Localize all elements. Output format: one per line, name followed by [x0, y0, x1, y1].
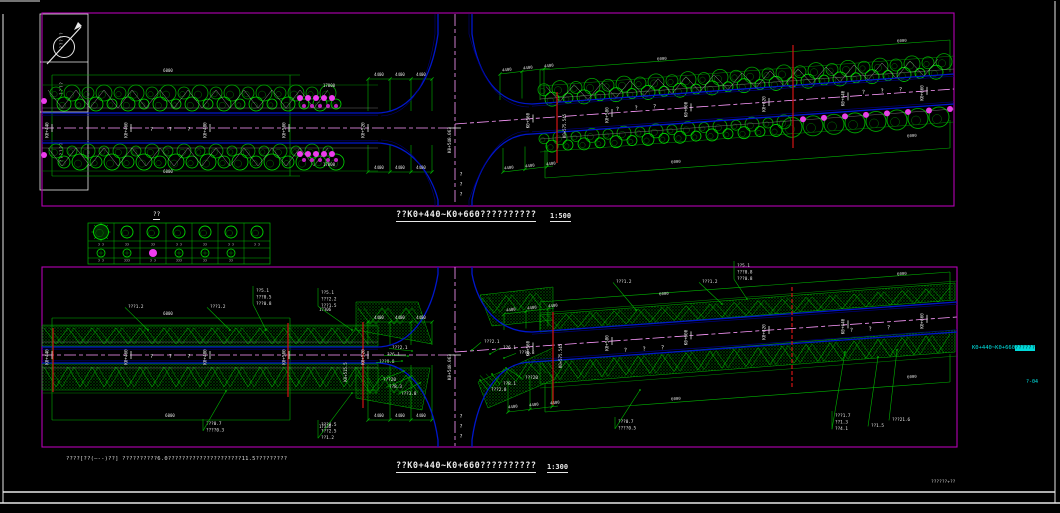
north-arrow — [47, 22, 82, 64]
svg-text:K0+640: K0+640 — [841, 90, 847, 106]
svg-text:6000: 6000 — [907, 133, 918, 139]
svg-text:17000: 17000 — [323, 83, 336, 88]
svg-text:???0.5: ???0.5 — [256, 294, 272, 300]
svg-text:4400: 4400 — [523, 64, 534, 70]
general-note: ????[??(—--)??] ??????????6.0???????????… — [66, 456, 287, 462]
svg-text:6000: 6000 — [657, 56, 668, 62]
svg-text:??4.1: ??4.1 — [835, 426, 848, 432]
svg-text:????0.5: ????0.5 — [618, 425, 637, 431]
svg-text:6000: 6000 — [163, 169, 173, 174]
svg-text:K0+640: K0+640 — [841, 318, 847, 334]
svg-text:? ? ?: ? ? ? — [616, 104, 663, 113]
svg-text:4400: 4400 — [395, 315, 405, 320]
svg-text:???0.8: ???0.8 — [256, 301, 272, 307]
svg-text:???1.2: ???1.2 — [702, 279, 718, 285]
svg-text:???1.7: ???1.7 — [835, 413, 851, 419]
svg-text:4400: 4400 — [546, 160, 557, 166]
svg-text:4400: 4400 — [374, 72, 384, 77]
svg-text:?: ? — [459, 424, 462, 430]
svg-text:6000: 6000 — [163, 311, 173, 316]
svg-text:K0+540.063: K0+540.063 — [447, 127, 453, 153]
svg-text:4400: 4400 — [504, 164, 515, 170]
svg-text:???0.8: ???0.8 — [519, 350, 535, 356]
svg-text:4400: 4400 — [374, 165, 384, 170]
svg-text:???: ??? — [124, 259, 130, 263]
svg-text:?: ? — [459, 434, 462, 440]
drawing-root: ???????????????K0+575.545K0+515.5K0+575.… — [0, 1, 1060, 503]
svg-text:? ?: ? ? — [254, 243, 260, 247]
svg-text:??1.2: ??1.2 — [321, 435, 334, 441]
svg-text:6000: 6000 — [659, 291, 670, 297]
svg-text:? ?: ? ? — [228, 243, 234, 247]
svg-text:???1.2: ???1.2 — [210, 304, 226, 310]
svg-text:K0+500: K0+500 — [282, 122, 288, 138]
svg-text:4400: 4400 — [395, 413, 405, 418]
svg-text:K0+620: K0+620 — [762, 96, 768, 112]
svg-text:? ?: ? ? — [150, 259, 156, 263]
svg-text:4400: 4400 — [395, 165, 405, 170]
svg-text:??5.1: ??5.1 — [737, 263, 750, 269]
svg-text:K0+540.063: K0+540.063 — [447, 354, 453, 380]
svg-text:? ? ?: ? ? ? — [862, 87, 909, 96]
svg-text:???2.2: ???2.2 — [321, 296, 337, 302]
svg-text:???1.5: ???1.5 — [321, 303, 337, 309]
svg-text:? ? ?: ? ? ? — [150, 354, 197, 360]
svg-text:K0+440: K0+440 — [45, 349, 51, 365]
svg-text:???2.8: ???2.8 — [491, 387, 507, 393]
bottom-plan-title: ??K0+440~K0+660?????????? — [396, 461, 536, 473]
svg-text:4400: 4400 — [416, 413, 426, 418]
svg-text:? ? ?: ? ? ? — [150, 127, 197, 133]
svg-text:???20: ???20 — [383, 377, 396, 383]
svg-text:K0+580: K0+580 — [605, 107, 611, 123]
svg-text:??: ?? — [229, 259, 233, 263]
svg-text:?: ? — [459, 192, 462, 198]
svg-text:??: ?? — [203, 259, 207, 263]
titleblock-small-text: ??????+?? — [931, 480, 955, 485]
svg-text:???1.2: ???1.2 — [616, 279, 632, 285]
svg-text:K0+600: K0+600 — [684, 101, 690, 117]
top-plan-scale: 1:500 — [550, 212, 571, 222]
svg-text:K0+660: K0+660 — [920, 85, 926, 101]
svg-text:K0+460: K0+460 — [124, 349, 130, 365]
svg-text:17000: 17000 — [323, 162, 336, 167]
svg-text:6000: 6000 — [671, 396, 682, 402]
cad-drawing-canvas[interactable]: ???????????????K0+575.545K0+515.5K0+575.… — [0, 0, 1060, 513]
svg-text:???20: ???20 — [525, 375, 538, 381]
svg-text:??6.1: ??6.1 — [503, 345, 516, 351]
svg-text:6000: 6000 — [907, 374, 918, 380]
svg-text:6000: 6000 — [897, 38, 908, 44]
svg-text:4400: 4400 — [416, 72, 426, 77]
svg-text:4400: 4400 — [544, 62, 555, 68]
svg-text:??1.3: ??1.3 — [835, 419, 848, 425]
sheet-number: ?-04 — [1026, 379, 1038, 385]
svg-text:4400: 4400 — [527, 304, 538, 310]
svg-text:??5.1: ??5.1 — [321, 290, 334, 296]
sheet-border: ??????????????? — [0, 1, 1060, 503]
svg-text:4400: 4400 — [416, 315, 426, 320]
svg-text:??8.1: ??8.1 — [503, 381, 516, 387]
svg-text:???0.8: ???0.8 — [737, 269, 753, 275]
legend-title: ?? — [153, 211, 160, 220]
svg-text:4400: 4400 — [529, 401, 540, 407]
svg-text:4400: 4400 — [506, 306, 517, 312]
svg-text:K0+600: K0+600 — [684, 329, 690, 345]
svg-text:6000: 6000 — [897, 271, 908, 277]
svg-text:K0+520: K0+520 — [361, 349, 367, 365]
svg-text:K0+575.545: K0+575.545 — [562, 113, 567, 138]
svg-text:K0+575.545: K0+575.545 — [558, 343, 563, 368]
svg-text:K0+620: K0+620 — [762, 324, 768, 340]
svg-text:?: ? — [459, 182, 462, 188]
svg-text:??6.1: ??6.1 — [387, 352, 400, 358]
svg-text:K0+480: K0+480 — [203, 349, 209, 365]
svg-text:K0+460: K0+460 — [124, 122, 130, 138]
svg-text:??: ?? — [125, 243, 129, 247]
side-station-highlight: ?????? — [1015, 345, 1035, 351]
svg-text:???2.1: ???2.1 — [484, 339, 500, 345]
svg-text:? ?: ? ? — [98, 243, 104, 247]
svg-text:K0+515.5: K0+515.5 — [343, 362, 348, 382]
svg-text:6000: 6000 — [671, 159, 682, 165]
svg-text:??: ?? — [203, 243, 207, 247]
svg-text:4400: 4400 — [525, 162, 536, 168]
svg-text:??8.3: ??8.3 — [389, 384, 402, 390]
svg-text:K0+580: K0+580 — [605, 335, 611, 351]
svg-text:???: ??? — [176, 259, 182, 263]
svg-text:??5.1: ??5.1 — [256, 288, 269, 294]
side-station-label: K0+440~K0+660?????? — [972, 345, 1035, 351]
svg-text:????0.3: ????0.3 — [206, 427, 225, 433]
svg-text:???1.2: ???1.2 — [128, 304, 144, 310]
top-plan-title: ??K0+440~K0+660?????????? — [396, 210, 536, 222]
svg-text:4400: 4400 — [502, 66, 513, 72]
svg-text:? ?: ? ? — [98, 259, 104, 263]
svg-text:K0+520: K0+520 — [361, 122, 367, 138]
svg-text:K0+660: K0+660 — [920, 313, 926, 329]
svg-text:4400: 4400 — [548, 302, 559, 308]
svg-text:K0+560: K0+560 — [526, 112, 532, 128]
svg-text:6000: 6000 — [165, 413, 175, 418]
svg-text:??: ?? — [151, 243, 155, 247]
svg-text:6000: 6000 — [163, 68, 173, 73]
svg-text:???0.5: ???0.5 — [321, 422, 337, 428]
svg-text:4400: 4400 — [395, 72, 405, 77]
svg-text:???0.8: ???0.8 — [737, 276, 753, 282]
top-plan-frame — [42, 13, 954, 206]
svg-text:K0+500: K0+500 — [282, 349, 288, 365]
svg-text:4400: 4400 — [374, 413, 384, 418]
side-station-text: K0+440~K0+660 — [972, 345, 1015, 351]
svg-text:?: ? — [459, 414, 462, 420]
svg-text:4400: 4400 — [508, 403, 519, 409]
svg-text:4400: 4400 — [550, 399, 561, 405]
svg-text:4400: 4400 — [416, 165, 426, 170]
svg-text:K0+440: K0+440 — [45, 122, 51, 138]
svg-text:4400: 4400 — [374, 315, 384, 320]
svg-text:?: ? — [459, 172, 462, 178]
svg-text:??1.5: ??1.5 — [871, 423, 884, 429]
cad-sheet: ???????????????K0+575.545K0+515.5K0+575.… — [0, 0, 1060, 513]
svg-text:K0+480: K0+480 — [203, 122, 209, 138]
legend-table: ? ?? ????????? ?? ????????? ???? ? — [88, 223, 270, 265]
svg-text:? ? ?: ? ? ? — [850, 325, 897, 334]
svg-text:???21.6: ???21.6 — [892, 417, 911, 423]
bottom-plan-scale: 1:300 — [547, 463, 568, 473]
svg-text:? ?: ? ? — [176, 243, 182, 247]
